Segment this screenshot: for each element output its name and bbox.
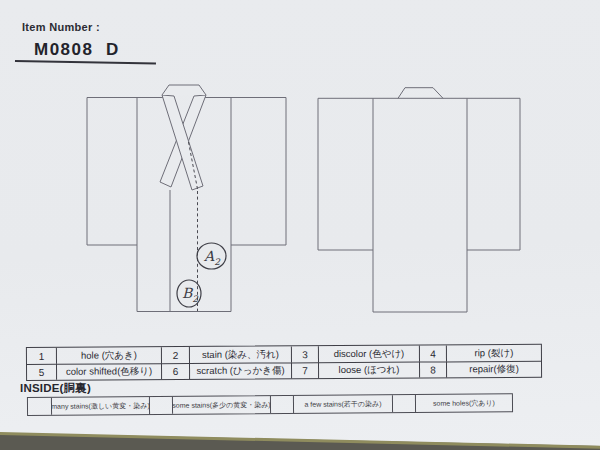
condition-label: stain (染み、汚れ) <box>189 346 291 363</box>
condition-label: loose (ほつれ) <box>318 362 419 379</box>
inside-condition-table: many stains(激しい黄変・染み) some stains(多少の黄変・… <box>27 393 513 416</box>
inside-checkbox-cell <box>392 395 415 412</box>
inside-option-label: many stains(激しい黄変・染み) <box>51 397 149 415</box>
condition-label: rip (裂け) <box>446 345 541 362</box>
condition-code: 2 <box>161 347 189 363</box>
condition-code: 4 <box>419 345 446 361</box>
condition-code: 5 <box>27 364 56 380</box>
condition-code: 3 <box>291 346 318 362</box>
condition-label: hole (穴あき) <box>56 347 161 364</box>
condition-legend-table: 1 hole (穴あき) 2 stain (染み、汚れ) 3 discolor … <box>26 344 542 381</box>
condition-code: 8 <box>419 361 446 377</box>
inside-option-label: some holes(穴あり) <box>415 394 512 412</box>
annotation-b2-text: B2 <box>182 285 199 304</box>
inside-option-label: some stains(多少の黄変・染み) <box>172 396 270 414</box>
inside-section-label: INSIDE(胴裏) <box>20 381 91 396</box>
annotation-a2-text: A2 <box>203 248 221 267</box>
kimono-back-outline <box>318 88 520 312</box>
condition-label: discolor (色やけ) <box>318 346 419 363</box>
condition-code: 7 <box>291 362 318 378</box>
condition-code: 1 <box>27 348 56 364</box>
condition-label: repair(修復) <box>446 361 541 378</box>
condition-label: scratch (ひっかき傷) <box>189 362 291 379</box>
inside-checkbox-cell <box>149 397 172 414</box>
kimono-front-collar <box>160 85 206 190</box>
kimono-back-collar <box>398 88 443 99</box>
inside-checkbox-cell <box>28 398 51 415</box>
inside-checkbox-cell <box>270 396 293 413</box>
condition-label: color shifted(色移り) <box>56 363 161 380</box>
inside-option-label: a few stains(若干の染み) <box>293 395 392 413</box>
scanned-condition-sheet: { "colors": { "paper": "#e9ebee", "desk_… <box>0 0 600 450</box>
condition-code: 6 <box>161 363 189 379</box>
